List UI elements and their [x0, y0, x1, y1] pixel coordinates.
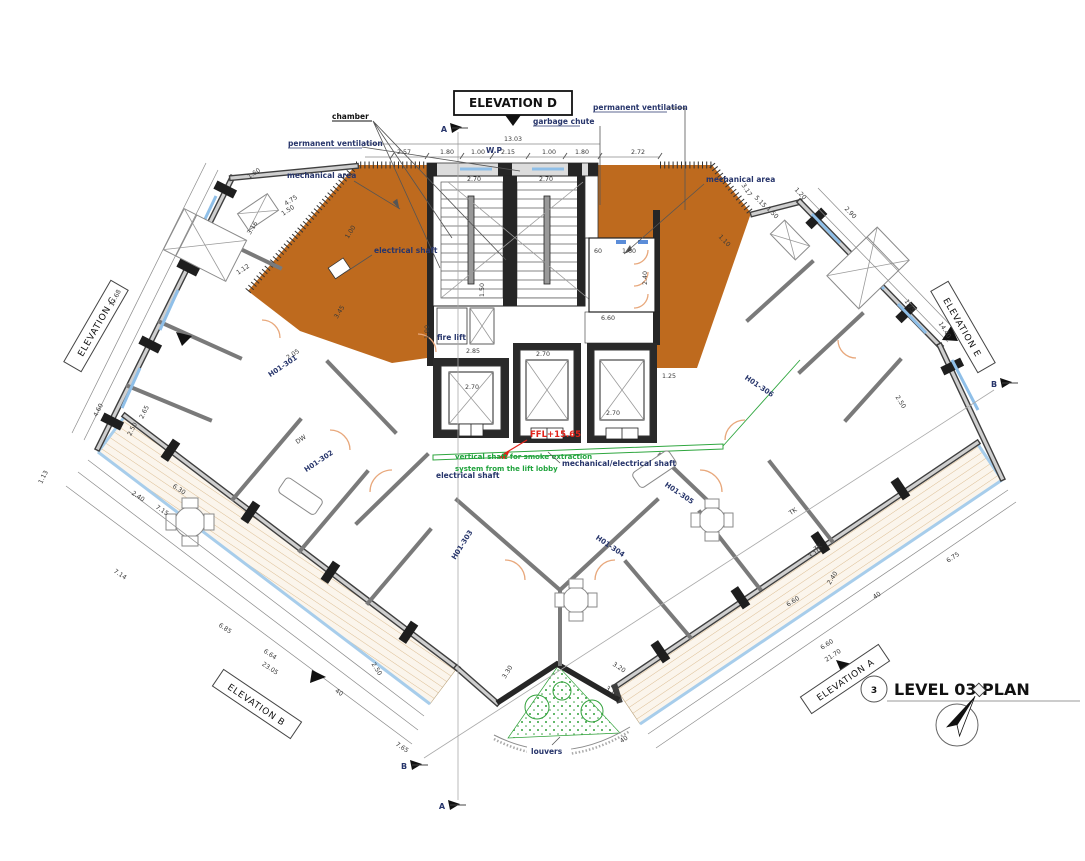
dimension-label: 1.90: [424, 325, 431, 339]
unit-label: H01-302: [303, 449, 335, 474]
elevation-arrow-icon: [505, 115, 521, 126]
dimension-label: 7.65: [394, 741, 410, 755]
floor-plan-canvas: ELEVATION D chamber permanent ventilatio…: [0, 0, 1085, 861]
dimension-label: 13.03: [504, 136, 522, 143]
section-marker: A: [441, 123, 468, 134]
dimension-label: 2.15: [501, 149, 515, 156]
dimension-label: 2.40: [130, 490, 146, 504]
dimension-label: 3.20: [611, 661, 627, 675]
dimension-label: 2.70: [539, 176, 553, 183]
dimension-label: 1.50: [479, 283, 486, 297]
garbage-chute-label: garbage chute: [533, 117, 594, 126]
dimension-label: 1.80: [575, 149, 589, 156]
dimension-label: 40: [334, 688, 345, 698]
sofa: [277, 476, 324, 516]
louvers-label: louvers: [531, 747, 563, 756]
plan-number: 3: [871, 686, 877, 696]
handrail: [468, 196, 474, 284]
dimension-label: 40: [619, 735, 630, 745]
dimension-label: 1.13: [37, 469, 50, 485]
permanent-ventilation-right-label: permanent ventilation: [593, 103, 688, 112]
dimension-label: TK: [787, 506, 799, 517]
dining-table: [691, 499, 733, 541]
lift-shaft: [587, 343, 657, 443]
mechanical-area-right-label: mechanical area: [706, 175, 775, 184]
ffl-label: FFL+15.65: [530, 430, 581, 440]
section-marker-letter: B: [401, 762, 407, 771]
dimension-label: 6.85: [217, 622, 233, 636]
corridor: [585, 312, 655, 343]
dimension-label: 7.14: [112, 568, 128, 582]
dimension-label: 6.64: [262, 648, 278, 662]
section-line-b: [424, 390, 994, 758]
dimension-label: 2.65: [138, 404, 151, 420]
unit-label: H01-306: [743, 374, 775, 399]
mech-elec-shaft-label: mechanical/electrical shaft: [562, 459, 676, 468]
section-marker-letter: A: [439, 802, 446, 811]
dimension-label: 3.17: [740, 182, 753, 198]
dimension-label: 2.70: [465, 384, 479, 391]
unit-label: H01-301: [267, 354, 299, 379]
permanent-ventilation-left-label: permanent ventilation: [288, 139, 383, 148]
dimension-label: 1.25: [662, 373, 676, 380]
section-marker: B: [401, 760, 428, 771]
chamber-label: chamber: [332, 112, 369, 121]
electrical-shaft-lobby-label: electrical shaft: [436, 471, 500, 480]
unit-label: H01-303: [450, 529, 474, 561]
dimension-label: 60: [594, 248, 602, 255]
elevation-d-label: ELEVATION D: [469, 96, 557, 110]
dimension-label: DW: [295, 433, 309, 445]
dimension-label: 1.00: [471, 149, 485, 156]
dimension-label: 6.60: [601, 315, 615, 322]
floor-plan-sheet: ELEVATION D chamber permanent ventilatio…: [0, 0, 1085, 861]
lifts: [433, 343, 657, 443]
planting-area: [494, 666, 630, 755]
dimension-label: 2.40: [642, 271, 649, 285]
title-block: 3 LEVEL 03 PLAN: [861, 676, 1080, 702]
dimension-label: 2.72: [631, 149, 645, 156]
mechanical-area-left-label: mechanical area: [287, 171, 356, 180]
dimension-label: 6.75: [945, 551, 961, 565]
section-marker: B: [991, 378, 1018, 389]
dimension-label: 2.90: [843, 205, 858, 220]
plan-title: LEVEL 03 PLAN: [894, 680, 1030, 699]
dimension-label: 1.12: [235, 263, 251, 277]
dimension-label: 2.70: [467, 176, 481, 183]
elevation-tag: ELEVATION B: [212, 669, 301, 738]
lift-shaft: [513, 343, 581, 443]
dimension-label: 3.30: [501, 664, 514, 680]
dimension-label: 23.05: [260, 661, 279, 677]
dimension-label: 1.60: [622, 248, 636, 255]
fire-lift-shaft: [433, 358, 509, 438]
dimension-label: 1.00: [542, 149, 556, 156]
dimension-label: 6.60: [819, 638, 835, 652]
section-marker: A: [439, 800, 466, 811]
dimension-label: 1.80: [440, 149, 454, 156]
dimension-label: 1.50: [280, 204, 296, 218]
dimension-label: 5.15: [753, 194, 768, 209]
section-marker-letter: B: [991, 380, 997, 389]
fire-lift-label: fire lift: [437, 333, 466, 342]
dimension-label: 2.85: [466, 348, 480, 355]
dimension-label: 2.70: [606, 410, 620, 417]
electrical-shaft-mech-label: electrical shaft: [374, 246, 438, 255]
dimension-label: 2.50: [894, 394, 907, 410]
garbage-chute-shaft: [585, 176, 598, 238]
wardrobe: [770, 220, 809, 260]
section-marker-letter: A: [441, 125, 448, 134]
dimension-label: 2.57: [397, 149, 411, 156]
dimension-label: 2.70: [536, 351, 550, 358]
